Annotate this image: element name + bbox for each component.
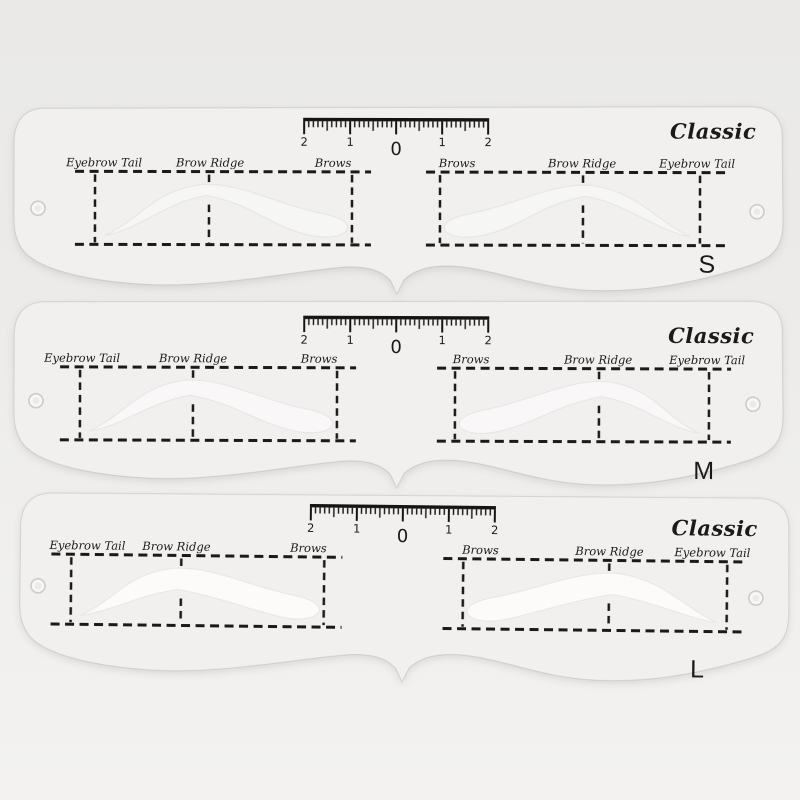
- label-brow-ridge-left: Brow Ridge: [111, 539, 241, 554]
- label-brow-ridge-left: Brow Ridge: [128, 351, 258, 365]
- brand-script-label: Classic: [635, 515, 795, 542]
- label-eyebrow-tail-right: Eyebrow Tail: [647, 545, 777, 560]
- ruler-number-1-right: 1: [430, 333, 454, 347]
- label-brows-left: Brows: [268, 156, 398, 170]
- ruler-number-0: 0: [390, 526, 414, 547]
- ruler-number-1-left: 1: [338, 333, 362, 347]
- label-brows-right: Brows: [406, 352, 536, 366]
- label-brows-left: Brows: [243, 540, 373, 555]
- ruler-number-1-right: 1: [437, 522, 461, 536]
- size-letter: S: [690, 251, 724, 280]
- ruler-number-2-right: 2: [476, 333, 500, 347]
- label-brow-ridge-left: Brow Ridge: [145, 155, 275, 169]
- label-brows-right: Brows: [415, 542, 545, 557]
- size-letter: M: [687, 457, 721, 486]
- ruler-number-2-left: 2: [292, 135, 316, 149]
- ruler-number-0: 0: [384, 139, 408, 160]
- stencil-size-l: Classic Eyebrow Tail Brow Ridge Brows Br…: [5, 483, 800, 707]
- ruler-number-1-left: 1: [338, 135, 362, 149]
- label-brow-ridge-right: Brow Ridge: [517, 156, 647, 170]
- ruler-number-1-right: 1: [430, 135, 454, 149]
- stencil-size-m: Classic Eyebrow Tail Brow Ridge Brows Br…: [0, 293, 800, 511]
- ruler-number-2-left: 2: [299, 521, 323, 535]
- ruler-number-2-left: 2: [292, 333, 316, 347]
- ruler-number-2-right: 2: [476, 135, 500, 149]
- label-brows-right: Brows: [392, 156, 522, 170]
- stencil-size-s: Classic Eyebrow Tail Brow Ridge Brows Br…: [0, 99, 800, 316]
- brand-script-label: Classic: [633, 118, 793, 143]
- ruler-number-2-right: 2: [483, 523, 507, 537]
- ruler-number-1-left: 1: [345, 521, 369, 535]
- ruler-number-0: 0: [384, 337, 408, 358]
- label-brows-left: Brows: [254, 351, 384, 365]
- brand-script-label: Classic: [631, 323, 791, 349]
- label-eyebrow-tail-right: Eyebrow Tail: [632, 156, 762, 170]
- label-eyebrow-tail-right: Eyebrow Tail: [642, 353, 772, 367]
- size-letter: L: [680, 655, 714, 684]
